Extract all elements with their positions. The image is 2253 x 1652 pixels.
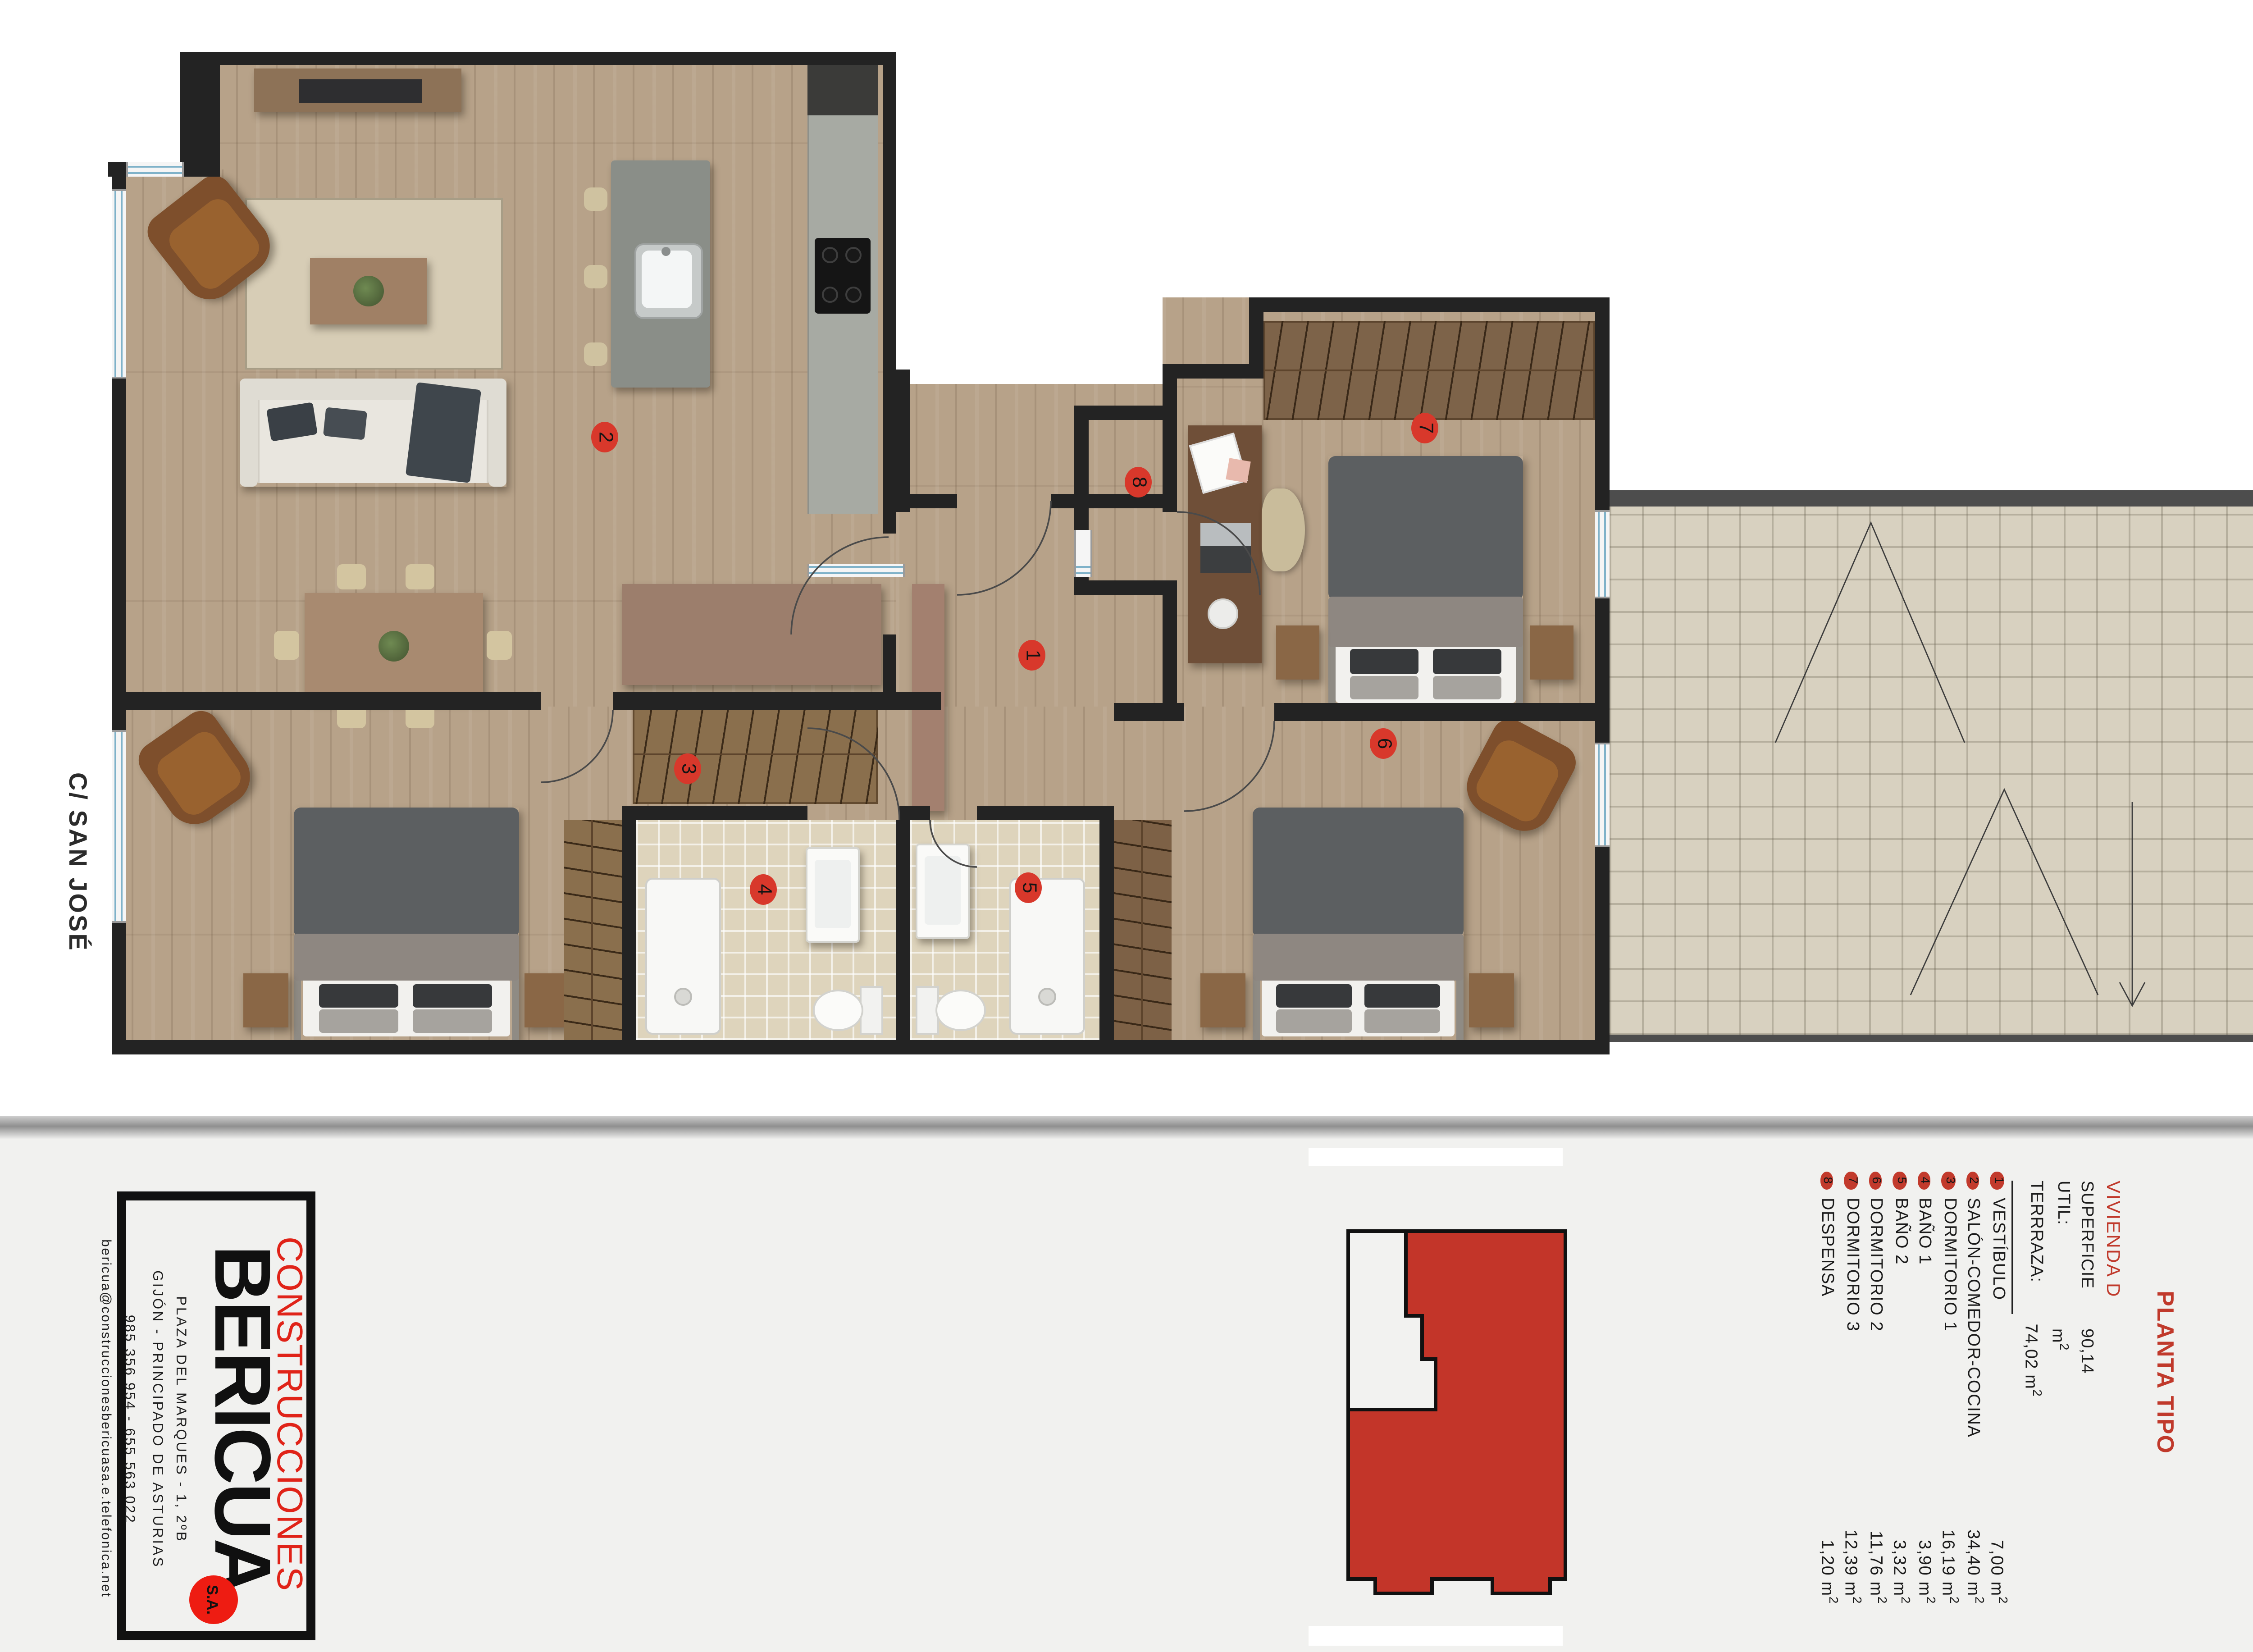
kitchen-sink <box>634 243 703 319</box>
key-diagram-bar-bottom <box>1309 1626 1563 1645</box>
bed-pillow <box>1433 649 1501 674</box>
sofa-arm-right <box>488 379 506 487</box>
desk-chair <box>1262 488 1305 571</box>
toilet-bowl-bath1 <box>813 990 863 1031</box>
plan-marker-bano1: 4 <box>750 874 777 905</box>
wall <box>112 1040 1610 1054</box>
room-name: DORMITORIO 1 <box>1939 1198 1959 1332</box>
superficie-row: SUPERFICIE UTIL: 90,14 m2 <box>2045 1181 2096 1397</box>
plan-marker-despensa: 8 <box>1125 467 1152 497</box>
key-diagram-bar-top <box>1309 1147 1563 1165</box>
room-name: VESTÍBULO <box>1988 1198 2007 1301</box>
wall <box>1074 406 1089 530</box>
room-name: SALÓN-COMEDOR-COCINA <box>1963 1198 1983 1438</box>
floor-terrace <box>1610 507 2253 1035</box>
wall <box>112 692 541 710</box>
nightstand <box>1276 625 1319 680</box>
kitchen-tall-units <box>807 65 878 115</box>
room-badge: 1 <box>1991 1172 2004 1190</box>
plan-marker-dormitorio1: 3 <box>674 753 701 784</box>
room-area: 1,20 m2 <box>1816 1540 1838 1604</box>
wall <box>899 806 930 820</box>
bed-bedroom2 <box>1253 808 1464 1040</box>
bed-pillow <box>1350 649 1418 674</box>
bedroom3-wardrobe <box>1263 321 1595 420</box>
bed-pillow <box>1433 676 1501 699</box>
title-block: CONSTRUCCIONES BERICUA S.A. PLAZA DEL MA… <box>0 1139 2253 1652</box>
room-badge: 4 <box>1918 1172 1931 1190</box>
bed-pillow <box>1350 676 1418 699</box>
shower-tray-bath1 <box>645 878 721 1035</box>
room-area: 7,00 m2 <box>1987 1540 2009 1604</box>
room-area: 3,32 m2 <box>1889 1540 1911 1604</box>
sofa-throw <box>406 382 481 483</box>
wall <box>1595 297 1610 1054</box>
bed-sheet <box>1328 597 1523 647</box>
wall <box>1074 580 1177 595</box>
bed-bedroom3 <box>1328 456 1523 707</box>
room-badge: 8 <box>1820 1172 1834 1190</box>
legend-row-vestibulo: 1 VESTÍBULO 7,00 m2 <box>1985 1172 2010 1604</box>
kitchen-counter <box>807 115 878 514</box>
nightstand <box>1530 625 1573 680</box>
bedroom2-closet <box>1114 820 1172 1040</box>
wall <box>1163 591 1177 721</box>
room-area: 11,76 m2 <box>1865 1531 1887 1604</box>
sink-bath1 <box>806 847 860 943</box>
tv <box>299 79 422 103</box>
company-city: GIJÓN - PRINCIPADO DE ASTURIAS <box>145 1264 165 1573</box>
nightstand <box>524 973 570 1027</box>
room-area: 3,90 m2 <box>1914 1540 1936 1604</box>
wall <box>1249 297 1610 312</box>
bed-duvet <box>1328 456 1523 600</box>
corridor-closet <box>633 707 878 804</box>
wall <box>1274 703 1610 721</box>
dining-chair <box>487 631 512 660</box>
sofa-arm-left <box>240 379 258 487</box>
bedroom1-wardrobe <box>564 820 622 1040</box>
wall <box>180 52 220 177</box>
wall <box>622 806 807 820</box>
legend-row-dormitorio3: 7 DORMITORIO 3 12,39 m2 <box>1839 1172 1864 1604</box>
wall <box>1051 494 1163 508</box>
plan-marker-dormitorio3: 7 <box>1411 413 1438 443</box>
room-badge: 7 <box>1845 1172 1858 1190</box>
desk-lamp <box>1208 598 1238 629</box>
sofa-pillow-2 <box>323 407 367 440</box>
sheet-divider <box>0 1116 2253 1139</box>
sink-faucet <box>661 247 670 256</box>
terraza-value: 74,02 m2 <box>2017 1323 2046 1397</box>
wall <box>896 820 910 1054</box>
plan-marker-vestibulo: 1 <box>1018 640 1045 671</box>
room-name: DORMITORIO 2 <box>1866 1198 1886 1332</box>
dining-plant <box>379 631 409 662</box>
legend-row-despensa: 8 DESPENSA 1,20 m2 <box>1815 1172 1839 1604</box>
window-living <box>112 189 126 379</box>
legend-underline <box>2012 1181 2014 1314</box>
superficie-label: SUPERFICIE UTIL: <box>2045 1181 2096 1328</box>
room-name: DESPENSA <box>1817 1198 1837 1297</box>
plant <box>353 276 384 306</box>
room-name: DORMITORIO 3 <box>1842 1198 1861 1332</box>
plan-area: 1 2 3 4 5 6 7 8 C/ SAN JOSÉ <box>0 0 2253 1116</box>
wall <box>977 806 1114 820</box>
wall <box>883 52 896 534</box>
legend-row-dormitorio1: 3 DORMITORIO 1 16,19 m2 <box>1937 1172 1961 1604</box>
sheet-canvas: 1 2 3 4 5 6 7 8 C/ SAN JOSÉ CONSTRUCCION… <box>0 0 2253 1652</box>
dining-table <box>305 593 483 699</box>
wall <box>1163 364 1177 512</box>
company-email: bericua@construccionesbericuasa.e.telefo… <box>96 1216 114 1621</box>
laptop-keyboard <box>1200 546 1251 573</box>
wall <box>896 370 910 512</box>
bar-stool <box>584 187 607 211</box>
legend-room-list: 1 VESTÍBULO 7,00 m2 2 SALÓN-COMEDOR-COCI… <box>1815 1172 2010 1604</box>
nightstand <box>1469 973 1514 1027</box>
room-area: 16,19 m2 <box>1938 1529 1960 1604</box>
legend-row-dormitorio2: 6 DORMITORIO 2 11,76 m2 <box>1864 1172 1888 1604</box>
terrace-door-bedroom2 <box>1595 743 1610 847</box>
plan-title: PLANTA TIPO <box>2147 1291 2179 1377</box>
wall <box>1099 806 1114 1054</box>
desk-notepad <box>1226 458 1251 483</box>
hall-sideboard <box>621 583 880 684</box>
wall <box>622 806 636 1054</box>
dining-chair <box>337 564 366 589</box>
laptop-screen <box>1200 523 1251 546</box>
terrace-wall-top <box>1610 490 2253 507</box>
pass-through-beam <box>807 564 905 577</box>
terraza-label: TERRRAZA: <box>2017 1181 2046 1282</box>
shower-tray-bath2 <box>1009 878 1085 1035</box>
wall <box>613 692 941 710</box>
key-location-diagram <box>1346 1229 1567 1595</box>
unit-title: VIVIENDA D <box>2102 1181 2123 1397</box>
window <box>126 162 184 177</box>
wall <box>1163 364 1263 379</box>
company-address: PLAZA DEL MARQUES - 1, 2ºB <box>169 1295 189 1542</box>
street-label: C/ SAN JOSÉ <box>59 771 92 950</box>
room-badge: 5 <box>1893 1172 1907 1190</box>
plan-marker-bano2: 5 <box>1015 872 1042 903</box>
dining-chair <box>274 631 299 660</box>
sliding-door-despensa <box>1074 530 1092 577</box>
desk <box>1188 425 1262 663</box>
company-phones: 985 356 954 - 655 563 022 <box>118 1312 138 1525</box>
wall <box>220 52 896 65</box>
room-area: 34,40 m2 <box>1962 1529 1984 1604</box>
cooktop <box>815 238 871 314</box>
wall <box>910 494 957 508</box>
kitchen-island <box>611 160 710 388</box>
room-area: 12,39 m2 <box>1841 1529 1863 1604</box>
terraza-row: TERRRAZA: 74,02 m2 <box>2017 1181 2046 1397</box>
window-bedroom1 <box>112 730 126 923</box>
sink-bath2 <box>916 844 970 939</box>
company-name-main: BERICUA <box>207 1229 274 1608</box>
legend-row-salon: 2 SALÓN-COMEDOR-COCINA 34,40 m2 <box>1961 1172 1985 1604</box>
dining-chair <box>406 564 434 589</box>
wall <box>1074 406 1177 420</box>
coffee-table <box>310 258 427 324</box>
terrace-wall-bottom <box>1610 1035 2253 1042</box>
wall <box>1114 703 1184 721</box>
bed-bedroom1 <box>294 808 519 1040</box>
plan-marker-dormitorio2: 6 <box>1370 728 1397 759</box>
nightstand <box>1200 973 1245 1027</box>
sink-basin <box>642 251 692 308</box>
legend-row-bano2: 5 BAÑO 2 3,32 m2 <box>1888 1172 1912 1604</box>
toilet-bowl-bath2 <box>935 990 986 1031</box>
legend-row-bano1: 4 BAÑO 1 3,90 m2 <box>1912 1172 1937 1604</box>
legend-header: VIVIENDA D SUPERFICIE UTIL: 90,14 m2 TER… <box>2033 1181 2123 1397</box>
nightstand <box>243 973 288 1027</box>
sofa <box>240 379 506 487</box>
room-name: BAÑO 1 <box>1915 1198 1934 1265</box>
terrace-door-bedroom3 <box>1595 510 1610 598</box>
room-name: BAÑO 2 <box>1890 1198 1910 1265</box>
bar-stool <box>584 265 607 288</box>
superficie-value: 90,14 m2 <box>2045 1328 2096 1397</box>
plan-marker-salon: 2 <box>591 422 618 452</box>
room-badge: 2 <box>1966 1172 1980 1190</box>
room-badge: 3 <box>1942 1172 1956 1190</box>
plan-sheet: 1 2 3 4 5 6 7 8 C/ SAN JOSÉ CONSTRUCCION… <box>0 0 2253 1652</box>
room-badge: 6 <box>1869 1172 1883 1190</box>
bar-stool <box>584 342 607 366</box>
